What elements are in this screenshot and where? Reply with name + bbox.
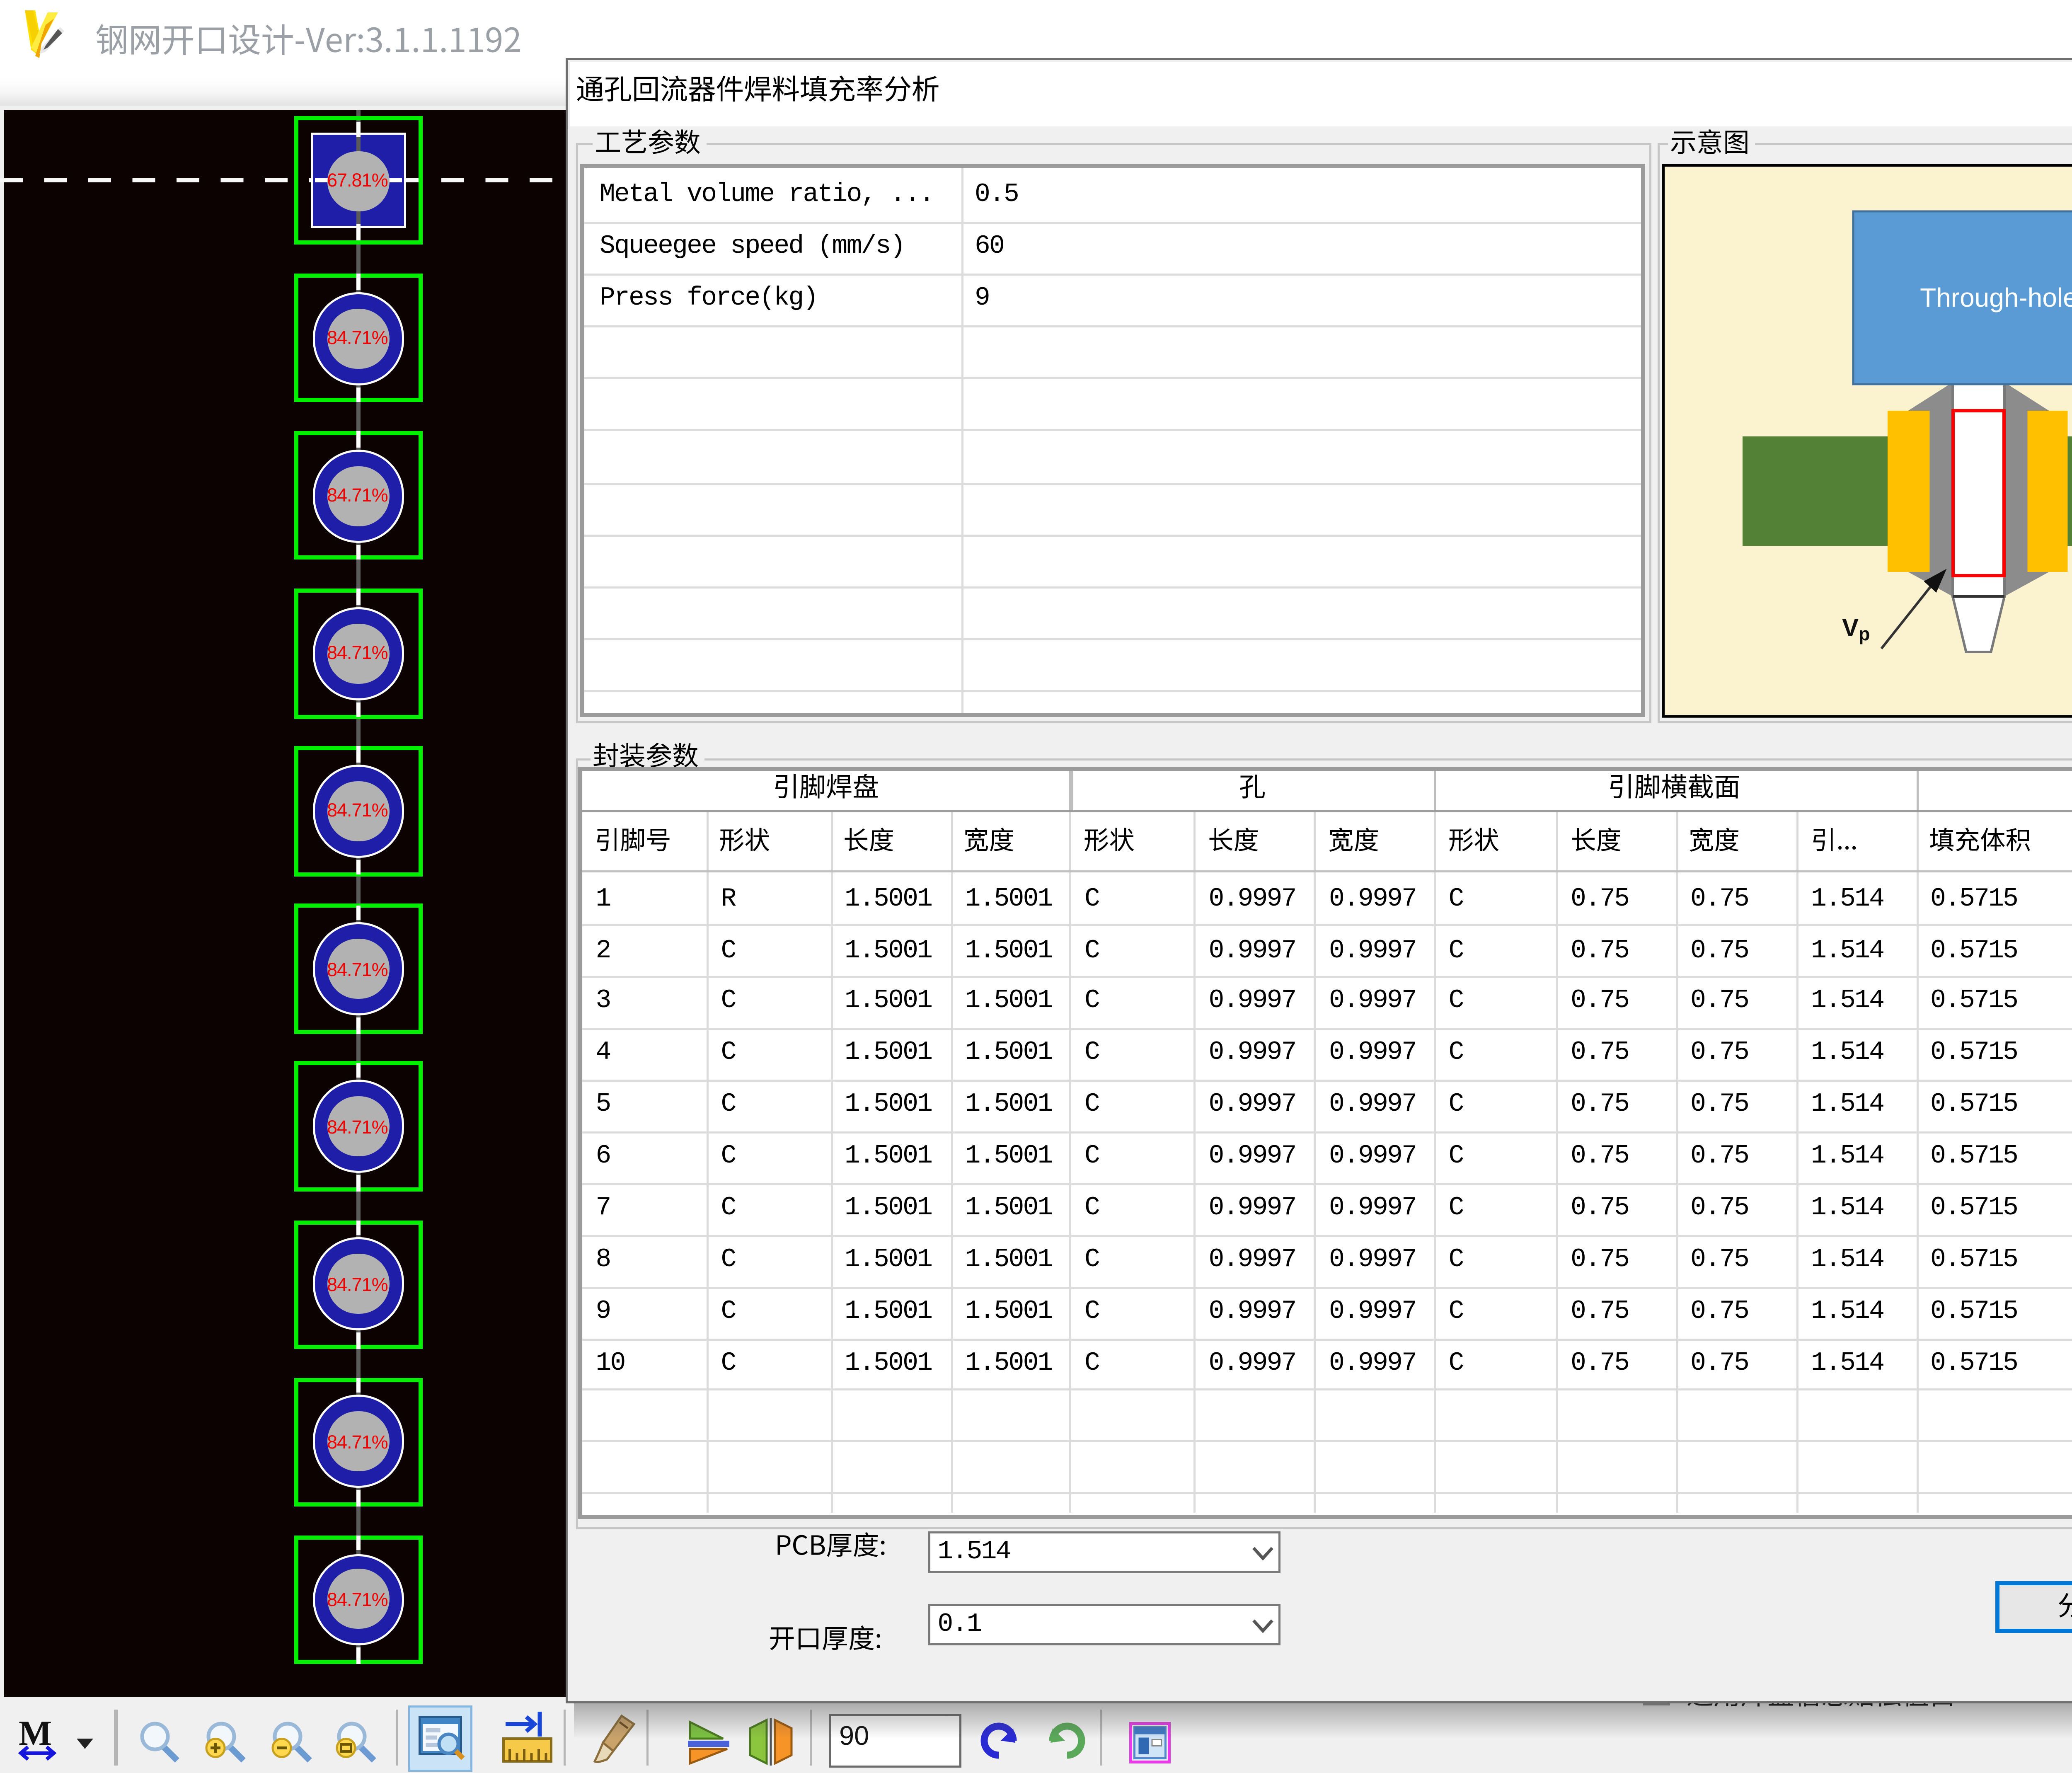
svg-text:Through-hole reflow package: Through-hole reflow package [1920,283,2072,312]
